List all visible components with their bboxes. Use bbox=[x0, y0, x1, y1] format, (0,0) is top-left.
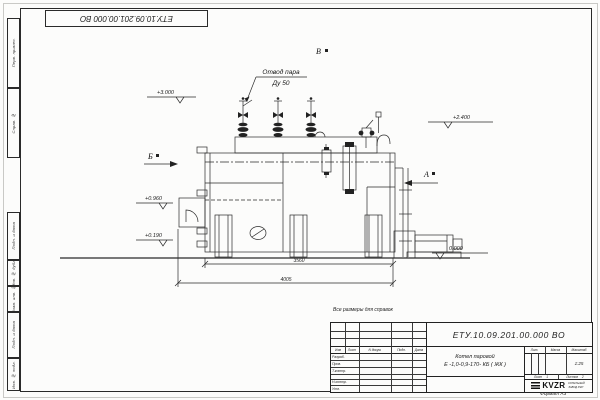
sheets-label: Листов bbox=[566, 375, 578, 379]
masshtab-label: Масштаб bbox=[566, 346, 592, 353]
company-cell: KVZR КОТЕЛЬНЫЙ ЗАВОД РЭП bbox=[524, 379, 592, 392]
elevation-0960-value: +0.960 bbox=[145, 196, 163, 202]
safety-valve-3 bbox=[306, 97, 317, 137]
elevation-0000-value: 0.000 bbox=[449, 246, 464, 252]
company-logo: KVZR bbox=[531, 381, 565, 390]
feed-valve-cluster bbox=[359, 112, 390, 148]
safety-valve-2 bbox=[273, 97, 284, 137]
kvzr-logo-text: KVZR bbox=[542, 381, 565, 390]
col-n-dokum: N докум. bbox=[359, 346, 391, 353]
dimension-4005-value: 4005 bbox=[280, 277, 291, 283]
company-name-line2: ЗАВОД РЭП bbox=[568, 386, 584, 389]
sheet-label: Лист bbox=[534, 375, 542, 379]
handhole bbox=[250, 227, 266, 240]
dimension-3560-value: 3560 bbox=[293, 258, 304, 264]
col-data: Дата bbox=[412, 346, 426, 353]
sheet-value: 1 bbox=[546, 375, 548, 379]
title-doc-number: ЕТУ.10.09.201.00.000 ВО bbox=[426, 323, 592, 346]
row-razrab: Разраб. bbox=[331, 353, 360, 360]
view-arrow-b: Б bbox=[144, 152, 178, 167]
product-name-line1: Котел паровой bbox=[455, 353, 494, 361]
col-podp: Подп. bbox=[391, 346, 412, 353]
drawing-sheet: Перв. примен. Справ. № Подп. и дата Инв.… bbox=[0, 0, 600, 400]
furnace-door bbox=[179, 198, 205, 227]
view-label-a: А bbox=[423, 170, 429, 179]
col-izm: Изм bbox=[331, 346, 345, 353]
elevation-2400: +2.400 bbox=[428, 115, 493, 128]
row-prov: Пров. bbox=[331, 360, 360, 367]
view-label-v-group: В bbox=[316, 47, 328, 56]
row-utv: Утв. bbox=[331, 385, 360, 392]
burner-unit bbox=[394, 231, 462, 258]
elevation-0190-value: +0.190 bbox=[145, 233, 163, 239]
view-label-b: Б bbox=[147, 152, 153, 161]
company-name: КОТЕЛЬНЫЙ ЗАВОД РЭП bbox=[568, 382, 584, 388]
steam-outlet-callout: Отвод пара Ду 50 bbox=[245, 68, 308, 102]
sheets-value: 2 bbox=[582, 375, 584, 379]
elevation-0000: 0.000 bbox=[432, 246, 488, 259]
title-block: ЕТУ.10.09.201.00.000 ВО Изм Лист N докум… bbox=[330, 322, 593, 393]
lit-label: Лит. bbox=[524, 346, 545, 353]
col-list: Лист bbox=[345, 346, 359, 353]
elevation-3000: +3.000 bbox=[147, 90, 196, 103]
view-label-v: В bbox=[316, 47, 321, 56]
elevation-3000-value: +3.000 bbox=[157, 90, 175, 96]
elevation-2400-value: +2.400 bbox=[453, 115, 471, 121]
callout-text-line1: Отвод пара bbox=[262, 68, 300, 76]
scale-value: 1:25 bbox=[566, 353, 592, 374]
water-level-gauge bbox=[343, 142, 356, 194]
elevation-0190: +0.190 bbox=[136, 233, 173, 246]
drum-dome bbox=[315, 132, 325, 137]
elevation-0960: +0.960 bbox=[136, 196, 173, 209]
support-legs bbox=[215, 215, 382, 257]
reference-note: Все размеры для справок bbox=[333, 307, 393, 313]
format-label: Формат А3 bbox=[540, 392, 566, 397]
row-tkontr: Т.контр. bbox=[331, 367, 360, 374]
view-arrow-a: А bbox=[404, 170, 438, 186]
product-name-line2: Е -1,0-0,9-170- КБ ( ЖК ) bbox=[444, 361, 506, 369]
product-name-cell: Котел паровой Е -1,0-0,9-170- КБ ( ЖК ) bbox=[426, 346, 524, 376]
view-arrow-b-head bbox=[170, 161, 178, 167]
sight-glass bbox=[322, 144, 331, 178]
massa-label: Масса bbox=[545, 346, 566, 353]
safety-valve-1 bbox=[238, 97, 253, 137]
kvzr-logo-icon bbox=[531, 382, 540, 390]
callout-text-line2: Ду 50 bbox=[272, 80, 290, 87]
boiler-body bbox=[205, 153, 395, 252]
